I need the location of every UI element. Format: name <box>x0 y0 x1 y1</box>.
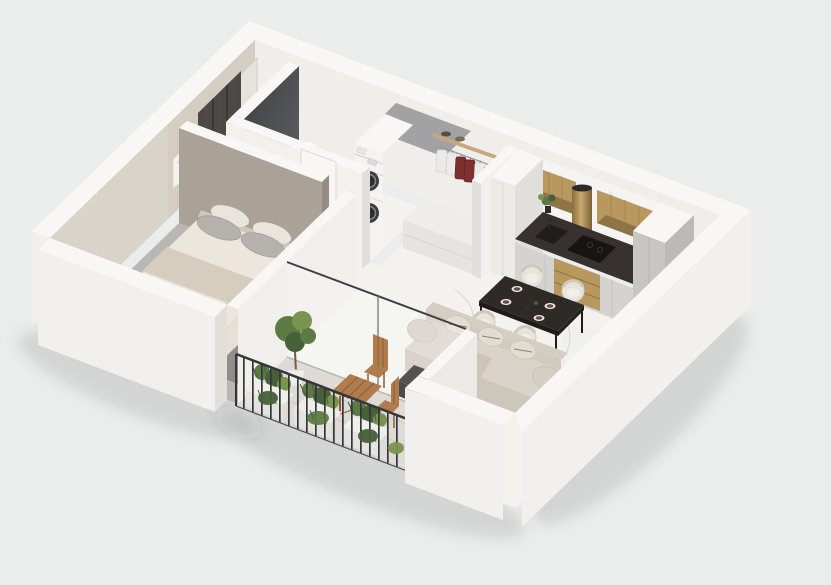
hat <box>441 132 451 137</box>
bedroom-south-wall-end-face <box>215 305 227 412</box>
floor-plan-render <box>0 0 831 585</box>
hat <box>455 137 465 142</box>
table-plant <box>534 301 538 305</box>
